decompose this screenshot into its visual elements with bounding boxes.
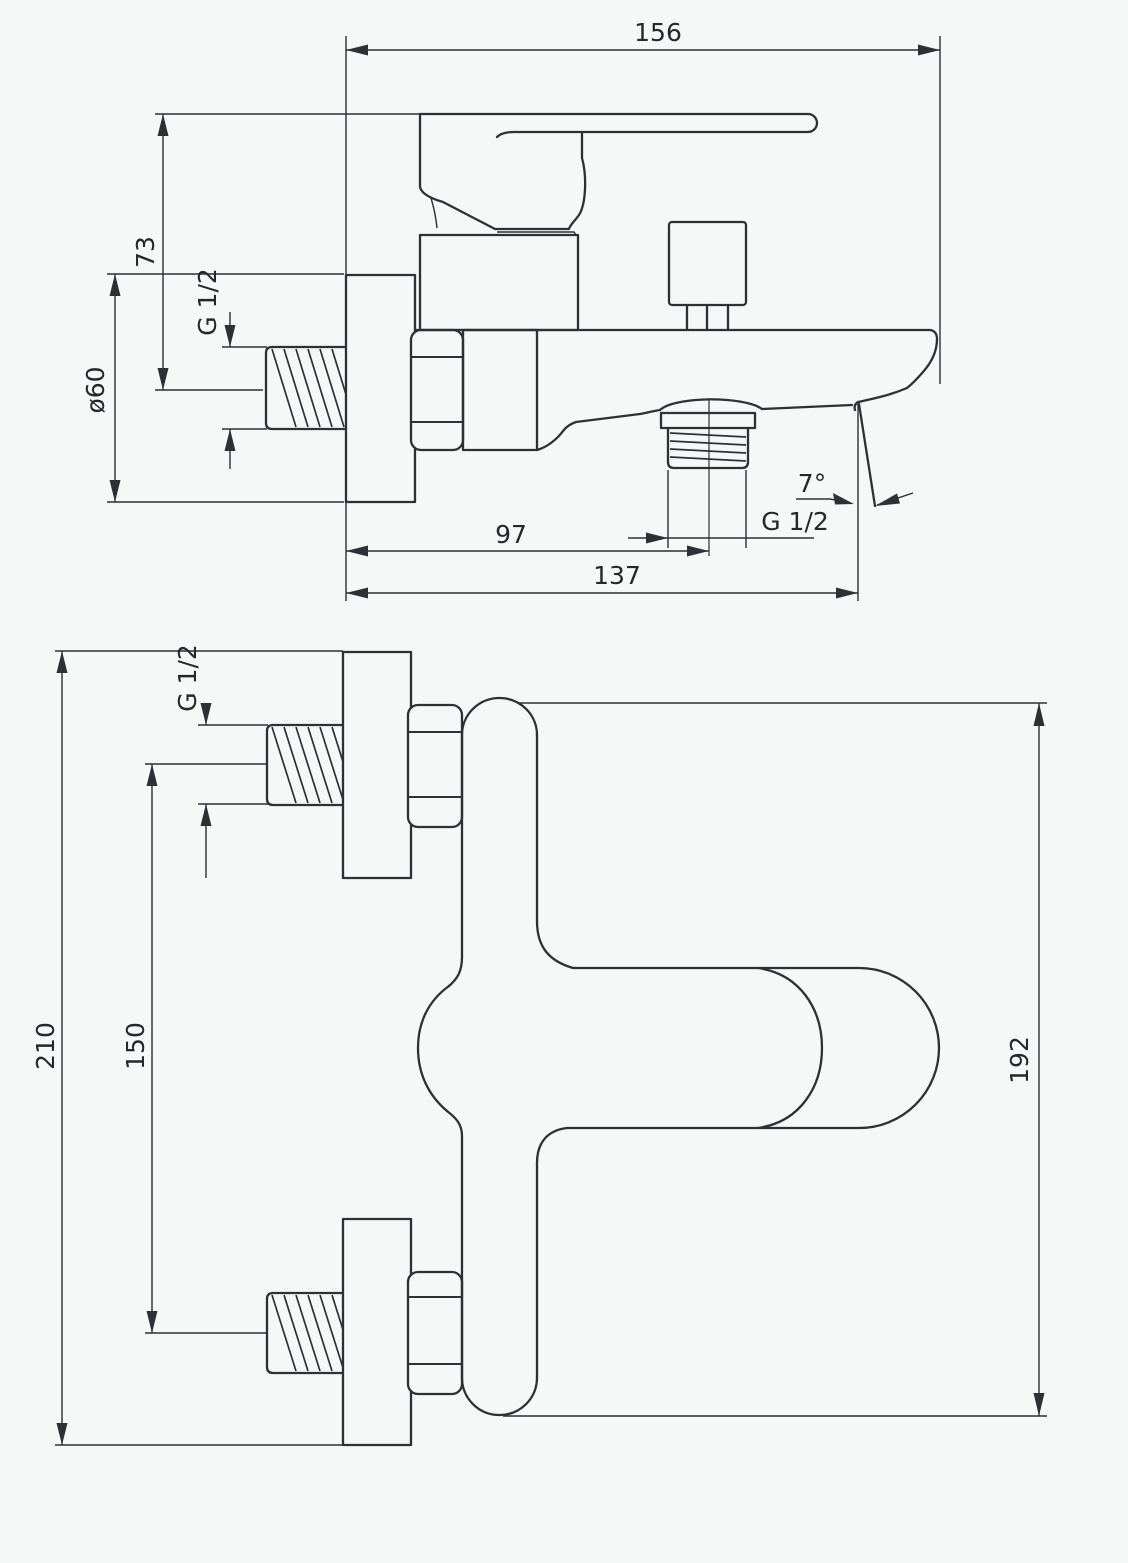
front-upper-hex-nut bbox=[408, 705, 462, 827]
front-body-column bbox=[447, 698, 573, 1415]
side-cartridge-housing bbox=[420, 235, 578, 330]
dim-escutcheon-label: ø60 bbox=[81, 366, 110, 413]
side-wall-escutcheon bbox=[346, 275, 415, 502]
front-dimensions bbox=[57, 651, 1045, 1445]
dim-body-length-label: 192 bbox=[1005, 1036, 1034, 1084]
front-lower-hex-nut bbox=[408, 1272, 462, 1394]
side-spout-tilt-line bbox=[859, 404, 875, 506]
dim-depth-label: 137 bbox=[593, 561, 641, 590]
side-aerator-flange bbox=[661, 413, 755, 428]
front-mixer-body bbox=[418, 968, 939, 1128]
side-outlet-thread-hatching bbox=[670, 433, 746, 461]
dim-spout-center-label: 97 bbox=[495, 520, 527, 549]
front-view: 210 150 G 1/2 192 bbox=[31, 644, 1047, 1445]
side-body-connector bbox=[463, 330, 537, 450]
front-extension-lines bbox=[55, 651, 1047, 1445]
dim-width-label: 156 bbox=[634, 18, 682, 47]
side-view: 156 73 ø60 G 1/2 97 G 1/2 7° 137 bbox=[81, 18, 940, 601]
dim-connection-centers-label: 150 bbox=[121, 1022, 150, 1070]
technical-drawing-page: 156 73 ø60 G 1/2 97 G 1/2 7° 137 bbox=[0, 0, 1128, 1563]
technical-drawing-canvas: 156 73 ø60 G 1/2 97 G 1/2 7° 137 bbox=[0, 0, 1128, 1563]
side-handle-lever bbox=[420, 114, 817, 229]
side-inlet-nipple bbox=[266, 347, 346, 429]
dim-overall-width-label: 210 bbox=[31, 1022, 60, 1070]
side-aerator-dome bbox=[660, 399, 762, 410]
front-lever-end-arc bbox=[758, 968, 822, 1128]
front-lower-escutcheon bbox=[343, 1219, 411, 1445]
dim-inlet-thread-label-side: G 1/2 bbox=[193, 268, 222, 336]
front-upper-escutcheon bbox=[343, 652, 411, 878]
side-hex-nut bbox=[411, 330, 463, 450]
dim-outlet-thread-label: G 1/2 bbox=[761, 507, 829, 536]
side-diverter-knob bbox=[669, 222, 746, 329]
dim-inlet-thread-label-front: G 1/2 bbox=[173, 644, 202, 712]
dim-spout-angle-label: 7° bbox=[798, 469, 826, 498]
side-inlet-thread-hatching bbox=[272, 349, 356, 427]
dim-handle-height-label: 73 bbox=[131, 236, 160, 268]
